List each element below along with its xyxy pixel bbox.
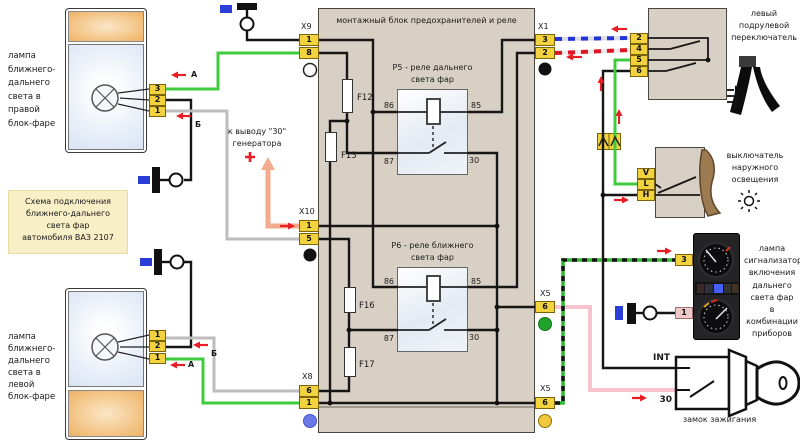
x10-label: X10 [299, 206, 315, 218]
wiring-diagram: 3 2 1 1 2 1 1 8 1 5 6 1 3 2 6 6 2 4 5 6 … [0, 0, 800, 447]
arrow-up [616, 109, 623, 124]
high-beam-indicator-wire [555, 260, 675, 403]
x1-pin-2: 2 [535, 47, 555, 59]
arrow-right [614, 197, 629, 204]
ignition-lock-icon [676, 350, 799, 416]
light-switch-pin-v: V [637, 168, 655, 179]
x9-label: X9 [301, 21, 312, 33]
left-lamp-pin-1: 1 [149, 330, 166, 341]
x1-label: X1 [538, 21, 549, 33]
cluster-pin-3: 3 [675, 254, 693, 266]
p6-terminal-85: 85 [471, 277, 481, 286]
pink-wire [555, 307, 675, 390]
arrow-up [598, 76, 605, 91]
arrow-left [566, 54, 582, 61]
x8-label: X8 [302, 371, 313, 383]
x9-pin-1: 1 [299, 34, 319, 46]
ignition-label: замок зажигания [672, 414, 767, 426]
fuse-f16-label: F16 [359, 300, 375, 313]
block-title: монтажный блок предохранителей и реле [318, 15, 535, 27]
fuse-f17-label: F17 [359, 359, 375, 372]
steering-pin-2: 2 [630, 33, 648, 44]
right-lamp-label: лампа ближнего- дальнего света в правой … [8, 50, 108, 132]
steering-stalk-icon [727, 56, 780, 115]
right-lamp-pin-2: 2 [149, 95, 166, 106]
arrow-left [176, 113, 191, 120]
steering-pin-6: 6 [630, 66, 648, 77]
x5-upper-pin-6: 6 [535, 301, 555, 313]
steering-switch-box [648, 8, 727, 100]
p5-terminal-86: 86 [374, 101, 394, 110]
p6-terminal-86: 86 [374, 277, 394, 286]
steering-switch-label: левый подрулевой переключатель [728, 8, 800, 44]
x5-lower-pin-6: 6 [535, 397, 555, 409]
p5-terminal-30: 30 [469, 156, 479, 165]
relay-p6-box [397, 267, 468, 352]
steering-pin-5: 5 [630, 55, 648, 66]
left-lamp-pin-1b: 1 [149, 353, 166, 364]
indicator-strip [695, 282, 738, 295]
arrow-right [632, 395, 647, 402]
x10-marker-black [304, 249, 317, 262]
p5-terminal-87: 87 [374, 157, 394, 166]
fuse-f13 [325, 132, 337, 162]
ground-left-lamp-icon [140, 249, 184, 275]
fuse-f17 [344, 347, 356, 377]
x5-upper-label: X5 [540, 288, 551, 300]
generator-note: к выводу "30" генератора [212, 126, 302, 150]
x5-lower-label: X5 [540, 383, 551, 395]
x10-pin-5: 5 [299, 233, 319, 245]
zigzag-connector [597, 133, 621, 150]
p6-terminal-30: 30 [469, 333, 479, 342]
x8-pin-6: 6 [299, 385, 319, 397]
arrow-right [657, 248, 672, 255]
x5-upper-marker-green [539, 318, 552, 331]
ignition-int-label: INT [640, 352, 670, 365]
arrow-left [171, 72, 186, 79]
headlight-beam-icon [727, 87, 744, 108]
steering-pin-4: 4 [630, 44, 648, 55]
wire-tag-a-bottom: А [188, 359, 194, 371]
right-lamp-pin-3: 3 [149, 84, 166, 95]
x1-pin-3: 3 [535, 34, 555, 46]
dashed-wires-x1 [555, 38, 630, 53]
relay-p5-label: Р5 - реле дальнего света фар [380, 62, 485, 86]
fuse-f16 [344, 287, 356, 313]
generator-wire [261, 157, 299, 226]
right-lamp-pin-1: 1 [149, 106, 166, 117]
ground-top-icon [220, 3, 257, 31]
cluster-pin-1: 1 [675, 307, 693, 319]
x10-pin-1: 1 [299, 220, 319, 232]
light-switch-pin-h: H [637, 190, 655, 201]
left-lamp-label: лампа ближнего- дальнего света в левой б… [8, 331, 108, 403]
sun-icon [738, 190, 760, 212]
x9-pin-8: 8 [299, 47, 319, 59]
x9-marker-white [304, 64, 317, 77]
relay-p5-box [397, 89, 468, 175]
ground-right-lamp-icon [138, 167, 183, 193]
x8-pin-1: 1 [299, 397, 319, 409]
right-headlamp-turn-section [68, 11, 144, 42]
arrow-left [611, 26, 627, 33]
wire-tag-b-top: Б [195, 119, 201, 131]
p6-terminal-87: 87 [374, 334, 394, 343]
schema-info-text: Схема подключения ближнего-дальнего свет… [8, 196, 128, 244]
cluster-label: лампа сигнализатор включения дальнего св… [744, 243, 800, 341]
x8-marker-blue [304, 415, 317, 428]
ground-cluster-icon [615, 303, 657, 324]
relay-p6-label: Р6 - реле ближнего света фар [380, 240, 485, 264]
wire-tag-a-top: А [191, 69, 197, 81]
fuse-f12 [342, 79, 353, 113]
gray-wires [166, 111, 299, 391]
arrow-right [280, 223, 295, 230]
arrow-left [170, 362, 185, 369]
x5-lower-marker-yellow [539, 415, 552, 428]
ignition-30-label: 30 [650, 394, 672, 407]
left-lamp-pin-2: 2 [149, 341, 166, 352]
plus-sign-icon [245, 152, 255, 162]
fuse-f13-label: F13 [341, 150, 357, 163]
wire-tag-b-bottom: Б [211, 348, 217, 360]
p5-terminal-85: 85 [471, 101, 481, 110]
light-switch-pin-l: L [637, 179, 655, 190]
x1-marker-black [539, 63, 552, 76]
arrow-left [193, 342, 208, 349]
light-switch-box [655, 147, 705, 218]
fuse-f12-label: F12 [357, 92, 373, 105]
light-switch-label: выключатель наружного освещения [712, 150, 798, 186]
